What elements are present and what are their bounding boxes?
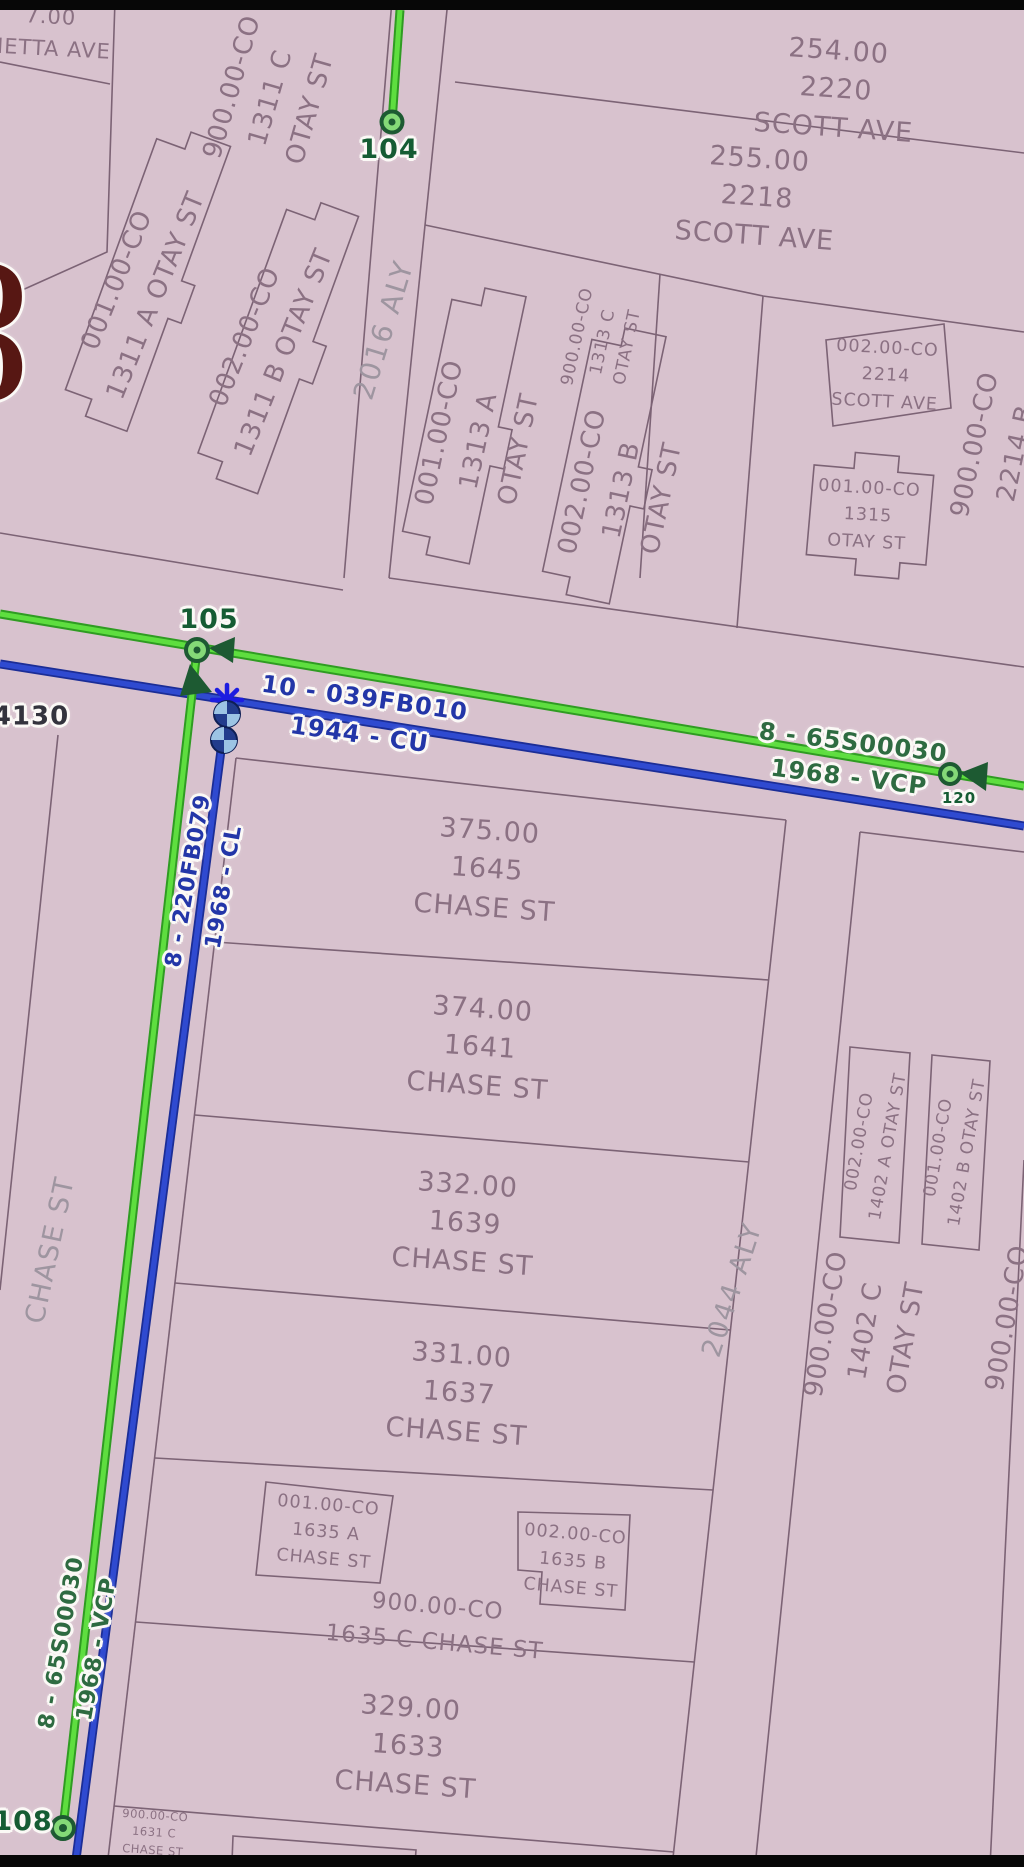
structure-circle-icon[interactable]: [214, 701, 240, 727]
parcel-label-2220-scott: 254.00 2220 SCOTT AVE: [752, 27, 919, 153]
node-label-120: 120: [942, 787, 976, 810]
parcel-label-1639-chase: 332.00 1639 CHASE ST: [390, 1162, 540, 1287]
parcel-label-1641-chase: 374.00 1641 CHASE ST: [405, 986, 555, 1111]
parcel-label-netta-ave: 7.00 NETTA AVE: [0, 0, 113, 68]
node-label-108: 108: [0, 1802, 53, 1843]
letterbox-bar-bottom: [0, 1855, 1024, 1867]
parcel-label-2218-scott: 255.00 2218 SCOTT AVE: [673, 135, 840, 261]
parcel-label-1645-chase: 375.00 1645 CHASE ST: [412, 808, 562, 933]
parcel-label-1637-chase: 331.00 1637 CHASE ST: [384, 1332, 534, 1457]
parcel-label-1635b-chase: 002.00-CO 1635 B CHASE ST: [518, 1517, 627, 1607]
parcel-label-1633-chase: 329.00 1633 CHASE ST: [333, 1685, 483, 1810]
sewer-node-marker-108[interactable]: [52, 1817, 74, 1839]
structure-circle-icon[interactable]: [211, 727, 237, 753]
parcel-label-1635a-chase: 001.00-CO 1635 A CHASE ST: [271, 1488, 380, 1578]
node-label-105: 105: [179, 600, 238, 641]
node-label-104: 104: [359, 130, 418, 171]
address-label-4130: 4130: [0, 698, 69, 737]
letterbox-bar-top: [0, 0, 1024, 10]
parcel-label-1631c-chase: 900.00-CO 1631 C CHASE ST: [119, 1805, 188, 1861]
map-canvas[interactable]: D O 7.00 NETTA AVE 254.00 2220 SCOTT AVE…: [0, 0, 1024, 1867]
parcel-label-1402c-otay: 900.00-CO 1402 C OTAY ST: [794, 1248, 939, 1415]
parcel-label-1315-otay: 001.00-CO 1315 OTAY ST: [815, 473, 922, 560]
parcel-label-2214-scott: 002.00-CO 2214 SCOTT AVE: [831, 333, 942, 420]
watermark-letter: O: [0, 322, 26, 414]
